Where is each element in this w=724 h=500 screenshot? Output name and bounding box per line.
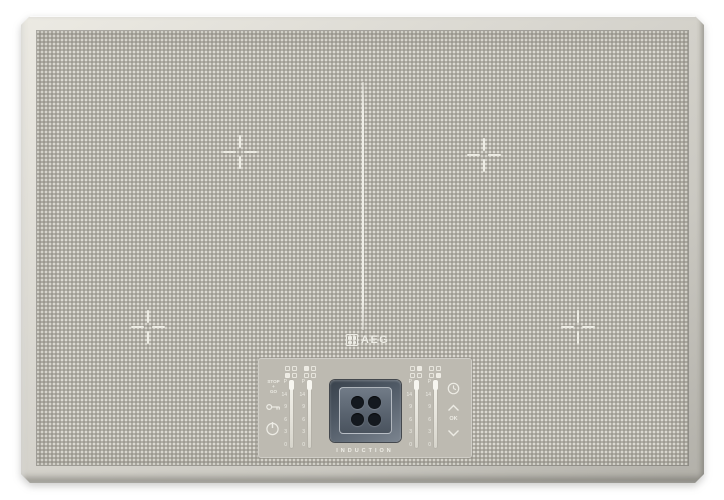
slider-tick-label: P xyxy=(428,380,431,385)
zone-marker-front-left xyxy=(131,310,165,344)
display-screen xyxy=(339,387,392,434)
brand-logo: AEG xyxy=(346,334,389,346)
slider-tick-label: P xyxy=(284,380,287,385)
zone-marker-rear-right xyxy=(467,138,501,172)
slider-scale: P149630 xyxy=(299,380,305,448)
slider-tick-label: 6 xyxy=(409,418,412,423)
power-slider-front-right[interactable]: P149630 xyxy=(421,380,437,450)
slider-tick-label: 14 xyxy=(281,393,287,398)
display-zone-dot xyxy=(351,396,364,409)
ok-button[interactable]: OK xyxy=(447,416,460,422)
slider-tick-label: 6 xyxy=(284,418,287,423)
slider-tick-label: 3 xyxy=(409,430,412,435)
power-slider-rear-right[interactable]: P149630 xyxy=(402,380,418,450)
aeg-logo-mark-icon xyxy=(346,334,358,346)
slider-tick-label: 14 xyxy=(299,393,305,398)
slider-tick-label: 9 xyxy=(284,405,287,410)
slider-scale: P149630 xyxy=(281,380,287,448)
zone-selector-rear-right-icon[interactable] xyxy=(410,366,422,378)
chevron-down-icon[interactable] xyxy=(447,429,460,437)
zone-selector-front-left-icon[interactable] xyxy=(285,366,297,378)
zone-marker-rear-left xyxy=(223,135,257,169)
glass-surface: AEG STOP + xyxy=(37,31,688,465)
zone-status-display xyxy=(330,380,401,442)
slider-tick-label: P xyxy=(409,380,412,385)
slider-tick-label: 9 xyxy=(428,405,431,410)
zone-selector-rear-left-icon[interactable] xyxy=(304,366,316,378)
slider-tick-label: 3 xyxy=(302,430,305,435)
brand-name: AEG xyxy=(361,334,389,346)
timer-clock-icon[interactable] xyxy=(447,382,460,395)
center-divider-line xyxy=(362,82,364,330)
induction-label: INDUCTION xyxy=(258,448,472,454)
display-zone-dot xyxy=(368,413,381,426)
slider-tick-label: P xyxy=(302,380,305,385)
slider-tick-label: 6 xyxy=(302,418,305,423)
zone-marker-front-right xyxy=(561,310,595,344)
power-slider-front-left[interactable]: P149630 xyxy=(277,380,293,450)
zone-selector-front-right-icon[interactable] xyxy=(429,366,441,378)
display-zone-dot xyxy=(368,396,381,409)
chevron-up-icon[interactable] xyxy=(447,404,460,412)
touch-control-panel: STOP + GO P149630 xyxy=(258,358,472,458)
slider-scale: P149630 xyxy=(406,380,412,448)
slider-tick-label: 3 xyxy=(284,430,287,435)
slider-scale: P149630 xyxy=(425,380,431,448)
induction-cooktop: AEG STOP + xyxy=(21,16,704,483)
slider-tick-label: 6 xyxy=(428,418,431,423)
display-zone-dot xyxy=(351,413,364,426)
power-slider-rear-left[interactable]: P149630 xyxy=(295,380,311,450)
slider-tick-label: 14 xyxy=(406,393,412,398)
slider-tick-label: 14 xyxy=(425,393,431,398)
slider-tick-label: 3 xyxy=(428,430,431,435)
slider-tick-label: 9 xyxy=(409,405,412,410)
slider-tick-label: 9 xyxy=(302,405,305,410)
